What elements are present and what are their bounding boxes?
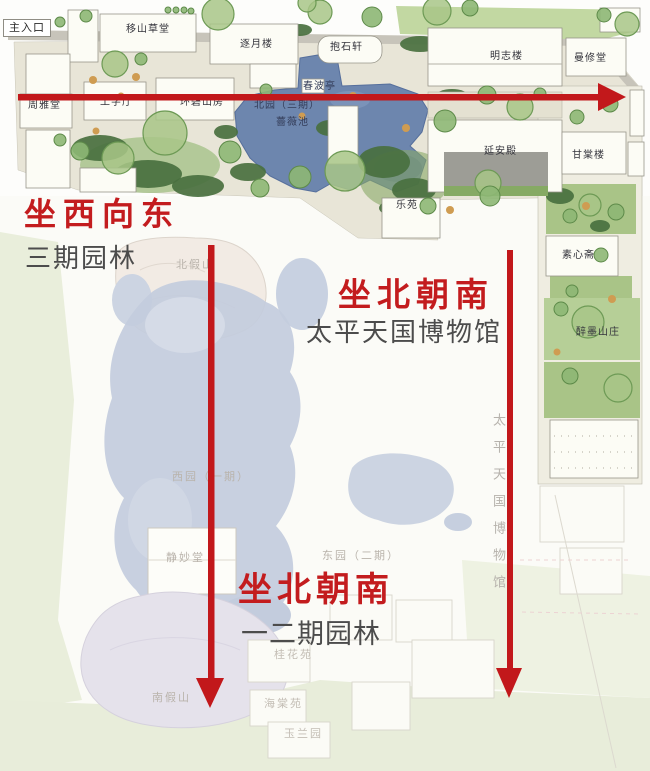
garden-map-art <box>0 0 650 771</box>
screenshot-root: 主入口 移山草堂 逐月楼 抱石轩 明志楼 曼修堂 周雅堂 工字厅 环碧山房 春波… <box>0 0 650 771</box>
